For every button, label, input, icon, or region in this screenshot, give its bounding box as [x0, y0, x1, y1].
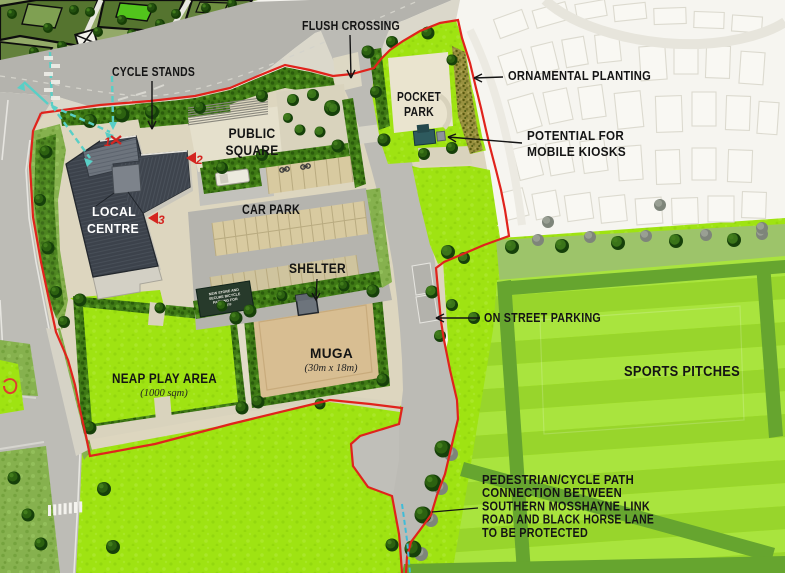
svg-text:ORNAMENTAL PLANTING: ORNAMENTAL PLANTING: [508, 68, 651, 83]
svg-text:POTENTIAL FOR: POTENTIAL FOR: [527, 128, 624, 143]
svg-text:SPORTS PITCHES: SPORTS PITCHES: [624, 364, 740, 380]
svg-text:ROAD AND BLACK HORSE LANE: ROAD AND BLACK HORSE LANE: [482, 513, 654, 527]
svg-text:LOCAL: LOCAL: [92, 205, 136, 219]
svg-text:TO BE PROTECTED: TO BE PROTECTED: [482, 526, 588, 540]
svg-text:NEAP PLAY AREA: NEAP PLAY AREA: [112, 371, 217, 386]
svg-text:SQUARE: SQUARE: [226, 143, 279, 158]
svg-text:2: 2: [195, 153, 203, 167]
svg-text:CENTRE: CENTRE: [87, 222, 139, 236]
svg-text:POCKET: POCKET: [397, 90, 441, 104]
svg-text:SHELTER: SHELTER: [289, 261, 346, 276]
svg-text:FLUSH CROSSING: FLUSH CROSSING: [302, 18, 400, 33]
svg-text:CYCLE STANDS: CYCLE STANDS: [112, 64, 195, 79]
svg-text:(30m x 18m): (30m x 18m): [304, 363, 358, 374]
svg-text:1: 1: [104, 135, 111, 149]
svg-text:3: 3: [158, 213, 165, 227]
svg-text:(1000 sqm): (1000 sqm): [140, 388, 188, 399]
svg-text:MUGA: MUGA: [310, 346, 353, 361]
svg-text:MOBILE KIOSKS: MOBILE KIOSKS: [527, 144, 626, 159]
svg-text:PUBLIC: PUBLIC: [229, 126, 276, 141]
svg-text:SOUTHERN MOSSHAYNE LINK: SOUTHERN MOSSHAYNE LINK: [482, 499, 650, 513]
svg-text:PARK: PARK: [404, 105, 434, 119]
svg-text:CONNECTION BETWEEN: CONNECTION BETWEEN: [482, 486, 622, 500]
svg-text:CAR PARK: CAR PARK: [242, 202, 300, 217]
svg-text:ON STREET PARKING: ON STREET PARKING: [484, 310, 601, 325]
svg-text:PEDESTRIAN/CYCLE PATH: PEDESTRIAN/CYCLE PATH: [482, 473, 634, 487]
